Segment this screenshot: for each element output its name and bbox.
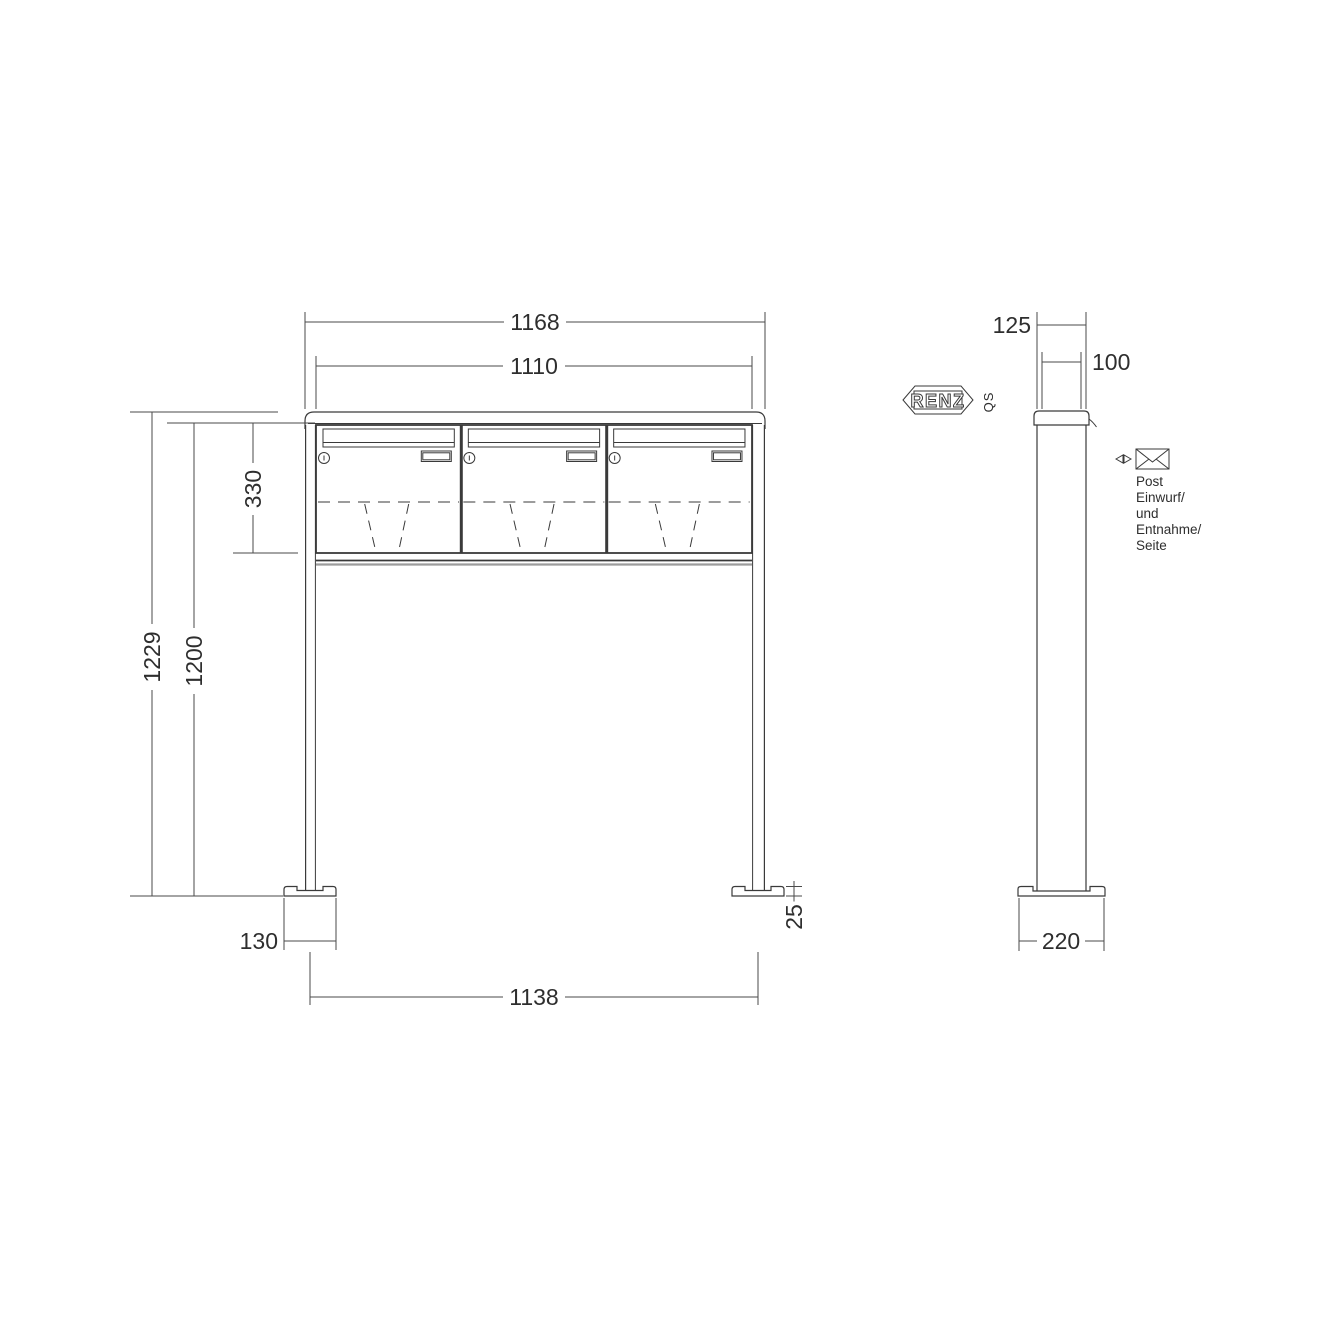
compartment [318,429,459,551]
post-slot-annotation: Post Einwurf/ und Entnahme/ Seite [1116,449,1202,553]
dimension-foot-width: 130 [240,898,336,954]
dim-label-overall-height: 1229 [139,631,165,682]
renz-logo: RENZ [903,386,973,414]
dim-label-box-width: 1110 [510,353,558,379]
letter-slot [323,429,454,447]
dim-label-box-height: 330 [240,470,266,508]
qs-mark: QS [981,392,996,413]
annotation-line: Seite [1136,538,1167,553]
dim-label-post-depth: 100 [1092,349,1130,375]
annotation-line: Entnahme/ [1136,522,1202,537]
left-post [306,425,316,890]
letterbox-body [316,425,752,553]
annotation-line: Einwurf/ [1136,490,1185,505]
dim-label-post-spacing: 1138 [509,984,558,1010]
side-column [1037,425,1086,891]
top-rail [305,412,765,429]
technical-drawing: 1168 1110 1229 1200 330 [0,0,1320,1320]
envelope-icon [1136,449,1169,469]
dimension-foot-plate-height: 25 [781,881,807,930]
bottom-rail [316,561,752,565]
dim-label-post-height: 1200 [181,635,207,686]
side-foot [1018,887,1105,897]
side-cap [1034,411,1097,427]
dim-label-overall-width: 1168 [510,309,559,335]
right-foot [732,887,784,897]
left-foot [284,887,336,897]
dim-label-foot-depth: 220 [1042,928,1080,954]
letter-slot [468,429,599,447]
annotation-line: Post [1136,474,1163,489]
dimension-foot-depth: 220 [1019,898,1104,954]
annotation-line: und [1136,506,1159,521]
dimension-box-width: 1110 [316,353,752,409]
left-right-arrows-icon [1116,455,1131,463]
dim-label-foot-plate-height: 25 [781,904,807,930]
compartment [609,429,750,551]
dim-label-overall-depth: 125 [993,312,1031,338]
renz-logo-text: RENZ [911,391,966,411]
right-post [753,425,765,890]
dim-label-foot-width: 130 [240,928,278,954]
side-view: 125 100 220 [993,312,1131,954]
dimension-overall-depth: 125 [993,312,1086,409]
dimension-box-height: 330 [233,423,298,553]
letter-slot [614,429,745,447]
front-view: 1168 1110 1229 1200 330 [130,309,807,1010]
compartment [463,429,604,551]
dimension-post-spacing: 1138 [310,952,758,1010]
drawing-canvas: 1168 1110 1229 1200 330 [0,0,1320,1320]
